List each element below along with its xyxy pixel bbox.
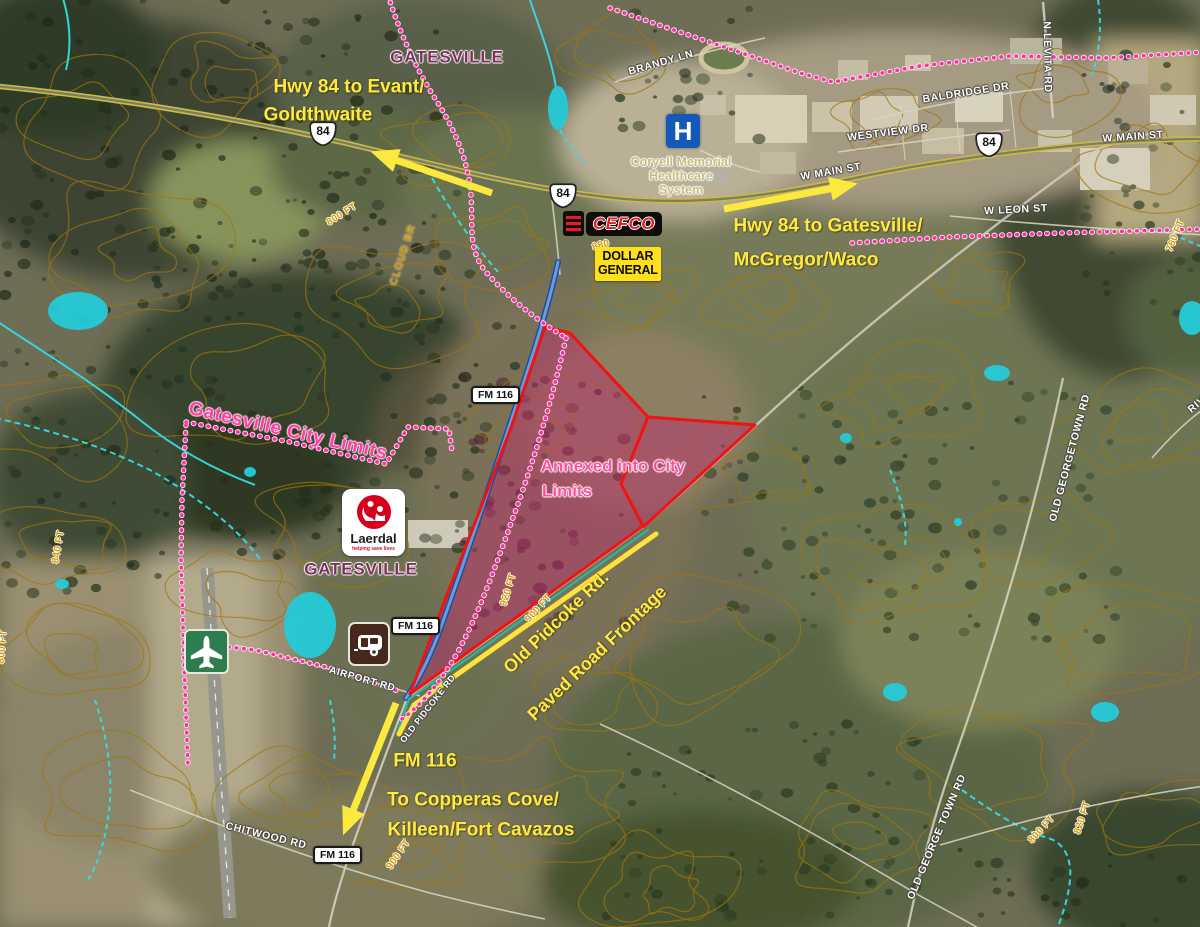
rv-trailer-icon bbox=[350, 624, 388, 664]
hwy84-east-note-line1: Hwy 84 to Gatesville/ bbox=[733, 217, 922, 236]
fm116-shield-south: FM 116 bbox=[313, 846, 362, 864]
us84-shield-east: 84 bbox=[974, 131, 1004, 157]
laerdal-sign: Laerdal helping save lives bbox=[342, 489, 405, 556]
fm116-shield-mid: FM 116 bbox=[391, 617, 440, 635]
annexed-label-line1: Annexed into City bbox=[541, 458, 686, 475]
rv-park-icon bbox=[348, 622, 390, 666]
gatesville-label-south: GATESVILLE bbox=[304, 561, 417, 578]
gatesville-label-north: GATESVILLE bbox=[390, 49, 503, 66]
fm116-south-note-line2: To Copperas Cove/ bbox=[387, 791, 559, 810]
fm116-shield-north: FM 116 bbox=[471, 386, 520, 404]
dollar-general-sign: DOLLAR GENERAL bbox=[595, 247, 661, 281]
airplane-icon bbox=[186, 631, 227, 672]
fm116-south-note-line1: FM 116 bbox=[393, 752, 456, 771]
us84-number: 84 bbox=[974, 135, 1004, 149]
us84-shield-center: 84 bbox=[548, 182, 578, 208]
annexed-label-line2: Limits bbox=[542, 483, 592, 500]
dollar-general-line2: GENERAL bbox=[598, 264, 658, 278]
hospital-name-line1: Coryell Memorial bbox=[631, 156, 732, 169]
dollar-general-line1: DOLLAR bbox=[598, 250, 658, 264]
hospital-name-line3: System bbox=[659, 184, 703, 197]
hospital-h-letter: H bbox=[674, 116, 693, 146]
fm116-text: FM 116 bbox=[320, 849, 355, 861]
map-canvas: GATESVILLE Hwy 84 to Evant/ Goldthwaite … bbox=[0, 0, 1200, 927]
cefco-text: CEFCO bbox=[593, 214, 655, 233]
airport-icon bbox=[184, 629, 229, 674]
fm116-text: FM 116 bbox=[398, 620, 433, 632]
laerdal-tagline: helping save lives bbox=[352, 546, 395, 552]
fm116-south-note-line3: Killeen/Fort Cavazos bbox=[388, 821, 575, 840]
cefco-stripes-icon bbox=[563, 211, 584, 236]
hospital-icon: H bbox=[666, 114, 700, 148]
hwy84-east-note-line2: McGregor/Waco bbox=[734, 251, 879, 270]
laerdal-name: Laerdal bbox=[350, 531, 396, 546]
us84-shield-west: 84 bbox=[308, 120, 338, 146]
hwy84-west-note-line1: Hwy 84 to Evant/ bbox=[274, 78, 425, 97]
us84-number: 84 bbox=[308, 124, 338, 138]
us84-number: 84 bbox=[548, 186, 578, 200]
n-levita-rd-label: N LEVITA RD bbox=[1041, 21, 1053, 93]
fm116-text: FM 116 bbox=[478, 389, 513, 401]
laerdal-logo-icon bbox=[356, 494, 392, 530]
cefco-sign: CEFCO bbox=[563, 211, 662, 236]
hospital-name-line2: Healthcare bbox=[649, 170, 713, 183]
